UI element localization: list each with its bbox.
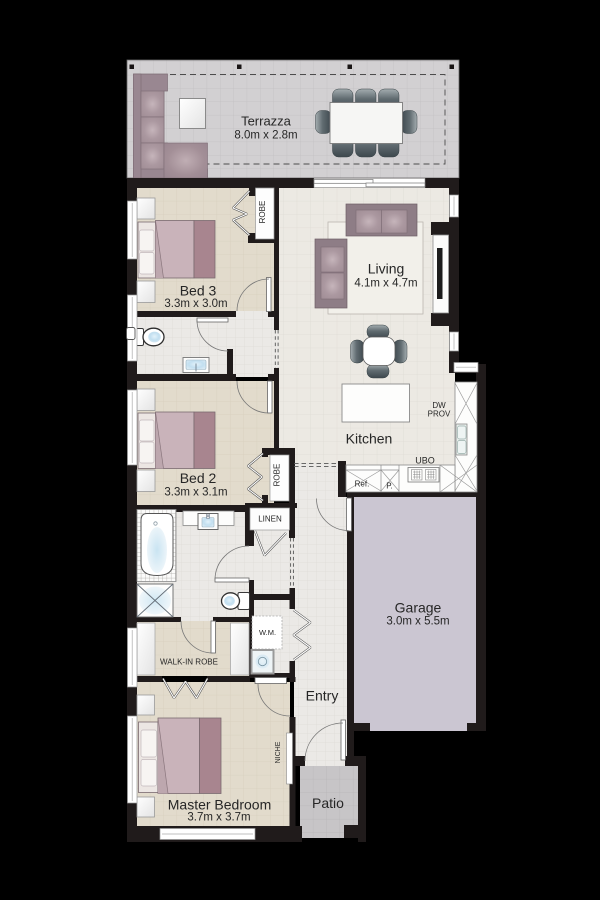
- svg-text:4.1m x 4.7m: 4.1m x 4.7m: [354, 278, 417, 290]
- svg-text:Entry: Entry: [306, 688, 339, 704]
- svg-text:ROBE: ROBE: [273, 464, 282, 487]
- svg-text:P.: P.: [386, 482, 393, 491]
- svg-text:3.3m x 3.0m: 3.3m x 3.0m: [164, 298, 227, 310]
- svg-text:Living: Living: [368, 261, 405, 277]
- svg-text:Master Bedroom: Master Bedroom: [168, 797, 271, 813]
- svg-text:Kitchen: Kitchen: [346, 431, 393, 447]
- svg-text:3.7m x 3.7m: 3.7m x 3.7m: [187, 812, 250, 824]
- svg-text:WALK-IN ROBE: WALK-IN ROBE: [160, 658, 218, 667]
- svg-text:NICHE: NICHE: [275, 741, 282, 763]
- svg-text:PROV: PROV: [428, 410, 451, 419]
- svg-text:LINEN: LINEN: [258, 515, 282, 524]
- svg-text:Garage: Garage: [395, 600, 442, 616]
- svg-text:W.M.: W.M.: [259, 628, 276, 637]
- svg-text:ROBE: ROBE: [258, 201, 267, 224]
- svg-text:Bed 3: Bed 3: [180, 283, 217, 299]
- svg-text:UBO: UBO: [415, 456, 435, 466]
- svg-text:Ref.: Ref.: [355, 480, 370, 489]
- svg-text:3.3m x 3.1m: 3.3m x 3.1m: [164, 487, 227, 499]
- svg-text:3.0m x 5.5m: 3.0m x 5.5m: [386, 616, 449, 628]
- svg-text:Bed 2: Bed 2: [180, 470, 217, 486]
- svg-text:Terrazza: Terrazza: [241, 114, 292, 129]
- svg-text:8.0m x 2.8m: 8.0m x 2.8m: [234, 130, 297, 142]
- svg-text:Patio: Patio: [312, 795, 344, 811]
